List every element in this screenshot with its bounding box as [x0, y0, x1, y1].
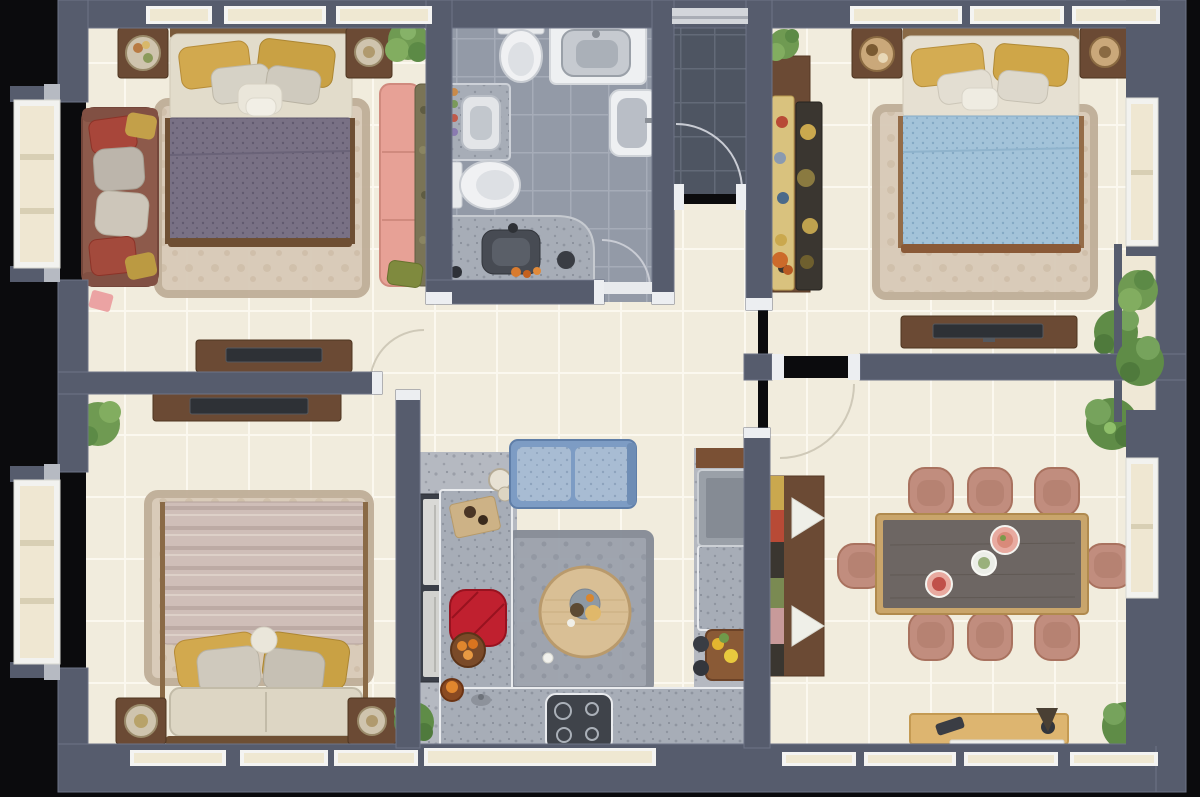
- wall-end-cap: [744, 428, 770, 438]
- nightstand-decor: [1099, 46, 1111, 58]
- television: [190, 398, 308, 414]
- bed-footboard: [168, 238, 352, 247]
- wall-dining-left: [744, 428, 770, 748]
- nightstand-bowl: [860, 37, 894, 71]
- nightstand-decor: [366, 715, 378, 727]
- wardrobe-decor: [777, 192, 789, 204]
- kitchen-item: [464, 506, 476, 518]
- bay-window-pane: [20, 486, 54, 658]
- bed-frame: [1079, 116, 1084, 248]
- window-pane: [1076, 9, 1156, 21]
- window-bar: [1131, 524, 1153, 529]
- plant: [785, 29, 799, 43]
- sofa-cushion: [575, 447, 631, 501]
- bay-window-pane: [20, 106, 54, 262]
- wall-bathroom-bottom: [426, 280, 604, 304]
- nightstand-bowl: [126, 36, 160, 70]
- dining-chair-seat: [848, 552, 876, 578]
- door-threshold: [604, 282, 652, 294]
- nightstand-decor: [878, 53, 888, 63]
- decor: [783, 265, 793, 275]
- bath-vanity-faucet: [592, 30, 600, 38]
- plate-food: [932, 577, 946, 591]
- plant: [1120, 362, 1140, 382]
- plant: [1094, 334, 1114, 354]
- bath-decor: [533, 267, 541, 275]
- wall-bathroom-right: [652, 0, 674, 304]
- dining-chair-seat: [917, 622, 945, 648]
- nightstand-decor: [363, 46, 375, 58]
- nightstand-decor: [143, 53, 153, 63]
- fruit: [724, 649, 738, 663]
- window-pane: [786, 755, 852, 763]
- wardrobe-decor: [800, 124, 816, 140]
- door-jamb: [772, 354, 784, 380]
- door-jamb: [736, 184, 746, 210]
- bath-hand-basin: [617, 98, 647, 148]
- floor-plan: [0, 0, 1200, 797]
- pillow-gray: [93, 146, 146, 191]
- window-pane: [338, 753, 414, 763]
- window-pane: [134, 753, 222, 763]
- plant: [1136, 336, 1160, 360]
- bed-frame: [898, 116, 903, 248]
- sofa-cushion: [517, 447, 571, 501]
- bay-window-bar: [20, 540, 54, 546]
- wall-end-cap: [372, 372, 382, 394]
- plate-food: [978, 557, 990, 569]
- fruit: [719, 633, 729, 643]
- nightstand-decor: [134, 714, 148, 728]
- stool: [693, 636, 709, 652]
- wall-end-cap: [652, 292, 674, 304]
- wall-bedroom1-bottom: [58, 372, 382, 394]
- bed1-duvet: [168, 118, 352, 242]
- bay-window-bar: [20, 154, 54, 160]
- wall-left: [58, 0, 88, 102]
- plant: [1103, 703, 1125, 725]
- bay-corner-cap: [44, 464, 60, 482]
- wall-bedroom3-right: [396, 390, 420, 748]
- nightstand-decor: [142, 41, 150, 49]
- television: [933, 324, 1043, 338]
- plant: [1134, 270, 1154, 290]
- wall-right-inner: [1126, 596, 1158, 746]
- wardrobe-decor: [776, 116, 788, 128]
- bath-bottle: [557, 251, 575, 269]
- toilet-seat: [508, 42, 534, 76]
- dining-chair-seat: [1043, 480, 1071, 506]
- plant: [385, 38, 409, 62]
- nightstand-decor: [133, 43, 143, 53]
- wall-right: [1156, 0, 1186, 792]
- plant: [1085, 399, 1111, 425]
- decor: [772, 252, 788, 268]
- window-pane: [1074, 755, 1154, 763]
- wardrobe-decor: [774, 152, 786, 164]
- stool: [693, 660, 709, 676]
- refrigerator-top: [706, 478, 744, 538]
- entry-floor: [674, 22, 746, 194]
- door-jamb: [674, 184, 684, 210]
- wardrobe-decor: [775, 234, 787, 246]
- bed3-duvet: [163, 502, 365, 644]
- bed2-duvet: [901, 116, 1081, 246]
- door-jamb: [848, 354, 860, 380]
- hall-corridor-floor: [674, 204, 746, 304]
- window-pane: [968, 755, 1054, 763]
- wall-bedroom2-bottom: [744, 354, 772, 380]
- toilet-seat: [476, 170, 514, 200]
- dining-chair-seat: [976, 622, 1004, 648]
- tv-stand: [983, 338, 995, 342]
- bath-vanity-basin: [576, 40, 618, 68]
- wardrobe-decor: [800, 255, 814, 269]
- television: [226, 348, 322, 362]
- pillow-white: [94, 190, 150, 238]
- wall-entry-right: [746, 0, 772, 310]
- mug: [543, 653, 553, 663]
- window-pane: [974, 9, 1060, 21]
- plant: [99, 401, 121, 423]
- sofa-armrest: [627, 443, 636, 505]
- pillow-white: [997, 69, 1050, 104]
- pillow-white: [246, 98, 276, 116]
- fruit: [586, 594, 594, 602]
- kitchen-faucet-knob: [478, 694, 484, 700]
- plate-food: [1000, 535, 1006, 541]
- dining-chair-seat: [917, 480, 945, 506]
- wall-right-inner: [1126, 410, 1158, 460]
- fruit: [468, 639, 478, 649]
- window-bar: [1131, 170, 1153, 175]
- pillow-white: [251, 627, 277, 653]
- bedroom1-pink-sofa: [380, 84, 420, 286]
- bay-window-bar: [20, 598, 54, 604]
- bath-corner-faucet: [508, 223, 518, 233]
- wardrobe-decor: [797, 169, 815, 187]
- wall-niche: [1114, 244, 1122, 422]
- wardrobe-decor: [802, 218, 818, 234]
- table-dish: [567, 619, 575, 627]
- table-dish: [570, 603, 584, 617]
- wall-end-cap: [594, 280, 604, 304]
- bed-footboard: [901, 244, 1081, 253]
- fruit: [463, 650, 473, 660]
- bay-corner-cap: [44, 84, 60, 102]
- bath-corner-basin: [492, 238, 530, 266]
- sofa-throw: [386, 260, 423, 288]
- wall-end-cap: [426, 292, 452, 304]
- bay-corner-cap: [44, 662, 60, 680]
- wall-end-cap: [746, 298, 772, 310]
- window-pane: [228, 9, 322, 21]
- fruit: [457, 641, 467, 651]
- dining-chair-seat: [976, 480, 1004, 506]
- fruit: [446, 681, 458, 693]
- wall-bathroom-left: [426, 0, 452, 304]
- table-dish: [585, 605, 601, 621]
- bed-frame: [350, 118, 355, 244]
- window-pane: [428, 751, 652, 763]
- dining-chair-seat: [1043, 622, 1071, 648]
- wall-end-cap: [396, 390, 420, 400]
- plant: [1104, 422, 1116, 434]
- bed-frame: [165, 118, 170, 244]
- floor-plan-image: [0, 0, 1200, 797]
- window-pane: [854, 9, 958, 21]
- dining-chair-seat: [1094, 552, 1122, 578]
- window-pane: [340, 9, 428, 21]
- bath-decor: [511, 267, 521, 277]
- window-pane: [150, 9, 208, 21]
- bath-decor: [523, 270, 531, 278]
- entry-threshold-line: [672, 16, 748, 19]
- kitchen-item: [478, 515, 488, 525]
- pillow-white: [962, 88, 998, 110]
- bay-window-bar: [20, 208, 54, 214]
- nightstand-decor: [866, 44, 878, 56]
- window-pane: [244, 753, 324, 763]
- window-pane: [868, 755, 952, 763]
- stove: [546, 694, 612, 750]
- plant: [1118, 288, 1142, 312]
- bath-left-basin: [470, 106, 492, 140]
- plant: [408, 42, 428, 62]
